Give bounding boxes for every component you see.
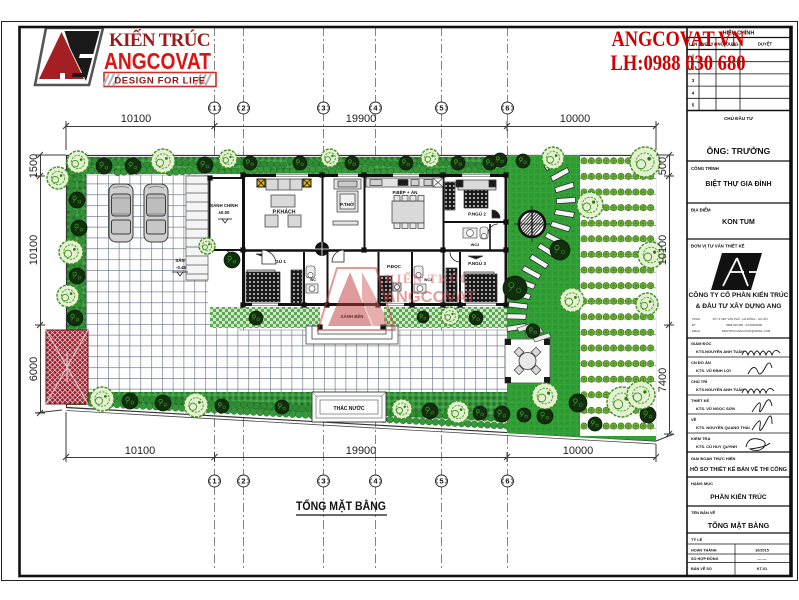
svg-text:VPGD: VPGD [692, 317, 700, 321]
svg-text:KTS.NGUYỄN ANH TUẤN: KTS.NGUYỄN ANH TUẤN [696, 387, 744, 392]
svg-text:10/2015: 10/2015 [755, 549, 769, 553]
svg-text:SÂN: SÂN [175, 258, 184, 263]
svg-text:10000: 10000 [560, 113, 591, 125]
svg-text:BẢN VẼ SỐ: BẢN VẼ SỐ [691, 566, 712, 571]
svg-text:±0.00: ±0.00 [219, 210, 231, 215]
svg-text:VẼ: VẼ [691, 417, 697, 422]
svg-text:19900: 19900 [346, 113, 377, 125]
svg-text:CHỦ ĐẦU TƯ: CHỦ ĐẦU TƯ [724, 115, 753, 121]
svg-text:KIỂM TRA: KIỂM TRA [691, 436, 710, 441]
svg-text:DESIGN FOR LIFE: DESIGN FOR LIFE [114, 76, 205, 87]
svg-text:EMAIL: EMAIL [692, 329, 701, 333]
svg-text:KIENTRUCANGCOVAT@GMAIL.COM: KIENTRUCANGCOVAT@GMAIL.COM [722, 329, 771, 333]
svg-text:10100: 10100 [121, 113, 152, 125]
svg-text:ANGCOVAT: ANGCOVAT [104, 48, 211, 74]
svg-text:ÔNG: TRƯỞNG: ÔNG: TRƯỞNG [707, 145, 771, 156]
svg-text:6: 6 [505, 104, 509, 113]
svg-text:10100: 10100 [125, 445, 156, 457]
svg-text:SẢNH CHÍNH: SẢNH CHÍNH [210, 203, 238, 208]
svg-text:KTS. NGUYỄN QUANG THÁI: KTS. NGUYỄN QUANG THÁI [696, 425, 750, 430]
svg-text:WC2: WC2 [471, 243, 479, 247]
svg-text:THIẾT KẾ: THIẾT KẾ [691, 398, 710, 403]
svg-text:KON TUM: KON TUM [722, 219, 755, 226]
svg-text:1500: 1500 [28, 154, 40, 178]
svg-text:ANGCOVAT: ANGCOVAT [384, 289, 476, 306]
svg-text:TỔNG MẶT BẰNG: TỔNG MẶT BẰNG [708, 521, 770, 530]
svg-text:2: 2 [241, 104, 245, 113]
svg-text:— —: — — [758, 557, 767, 561]
svg-text:10100: 10100 [657, 235, 669, 266]
svg-text:BIỆT THỰ GIA ĐÌNH: BIỆT THỰ GIA ĐÌNH [705, 179, 771, 188]
svg-text:P.NGỦ 2: P.NGỦ 2 [468, 211, 486, 217]
svg-text:3: 3 [321, 477, 325, 486]
svg-text:ANGCOVAT.VN: ANGCOVAT.VN [612, 26, 745, 51]
svg-text:5: 5 [439, 104, 443, 113]
svg-text:10100: 10100 [28, 235, 40, 266]
svg-text:ĐỊA ĐIỂM: ĐỊA ĐIỂM [691, 208, 711, 213]
svg-text:KT-01: KT-01 [757, 567, 767, 571]
svg-text:ĐT: ĐT [692, 323, 696, 327]
svg-text:HỒ SƠ THIẾT KẾ BẢN VẼ THI CÔNG: HỒ SƠ THIẾT KẾ BẢN VẼ THI CÔNG [690, 465, 787, 473]
svg-text:-0.45: -0.45 [176, 265, 187, 270]
svg-text:TÊN BẢN VẼ: TÊN BẢN VẼ [691, 510, 716, 515]
svg-text:ĐƠN VỊ TƯ VẤN THIẾT KẾ: ĐƠN VỊ TƯ VẤN THIẾT KẾ [691, 244, 745, 249]
svg-text:DUYỆT: DUYỆT [758, 42, 773, 47]
svg-text:WC: WC [310, 278, 316, 282]
svg-text:0988 030 680 - 04.66590090: 0988 030 680 - 04.66590090 [726, 323, 762, 327]
svg-text:GIAI ĐOẠN THỰC HIỆN: GIAI ĐOẠN THỰC HIỆN [691, 456, 736, 461]
svg-text:CN ĐỒ ÁN: CN ĐỒ ÁN [691, 360, 711, 365]
svg-text:P.NGỦ 3: P.NGỦ 3 [468, 260, 486, 266]
svg-text:1: 1 [212, 477, 216, 486]
svg-text:P.BẾP + ĂN: P.BẾP + ĂN [393, 189, 419, 195]
svg-text:6000: 6000 [28, 357, 40, 381]
svg-text:P.KHÁCH: P.KHÁCH [273, 209, 296, 216]
svg-text:TỔNG MẶT BẰNG: TỔNG MẶT BẰNG [296, 500, 386, 513]
svg-text:KTS. VŨ NGỌC SƠN: KTS. VŨ NGỌC SƠN [696, 406, 735, 411]
svg-text:4: 4 [692, 90, 695, 95]
svg-text:19900: 19900 [346, 445, 377, 457]
svg-text:3: 3 [321, 104, 325, 113]
svg-text:10000: 10000 [563, 445, 594, 457]
svg-text:CÔNG TRÌNH: CÔNG TRÌNH [691, 166, 719, 171]
svg-text:P.THỜ: P.THỜ [340, 200, 354, 207]
svg-text:THÁC NƯỚC: THÁC NƯỚC [334, 404, 365, 412]
svg-text:SỐ 71 KĐT VĂN PHÚ - HÀ ĐÔNG -: SỐ 71 KĐT VĂN PHÚ - HÀ ĐÔNG - HÀ NỘI [712, 316, 767, 321]
svg-text:5: 5 [439, 477, 443, 486]
svg-text:KTS. CÙ HUY QUỲNH: KTS. CÙ HUY QUỲNH [696, 444, 737, 449]
svg-text:HOÀN THÀNH: HOÀN THÀNH [691, 548, 717, 553]
svg-text:P.ĐỌC: P.ĐỌC [387, 264, 402, 269]
svg-text:GIÁM ĐỐC: GIÁM ĐỐC [691, 341, 712, 346]
svg-text:2: 2 [241, 477, 245, 486]
svg-text:500: 500 [657, 157, 669, 175]
svg-text:KTS. VŨ ĐÌNH LỢI: KTS. VŨ ĐÌNH LỢI [696, 368, 731, 373]
svg-text:7400: 7400 [657, 368, 669, 392]
svg-text:CHỦ TRÌ: CHỦ TRÌ [691, 379, 707, 384]
svg-text:6: 6 [505, 477, 509, 486]
svg-text:KTS.NGUYỄN ANH TUẤN: KTS.NGUYỄN ANH TUẤN [696, 349, 744, 354]
svg-text:TỶ LỆ: TỶ LỆ [691, 537, 703, 542]
svg-text:3: 3 [692, 78, 695, 83]
svg-text:5: 5 [692, 103, 695, 108]
svg-text:SỐ HỢP ĐỒNG: SỐ HỢP ĐỒNG [691, 556, 718, 561]
svg-text:HẠNG MỤC: HẠNG MỤC [691, 481, 713, 486]
svg-text:1: 1 [212, 104, 216, 113]
svg-text:LH:0988 030 680: LH:0988 030 680 [611, 50, 746, 75]
